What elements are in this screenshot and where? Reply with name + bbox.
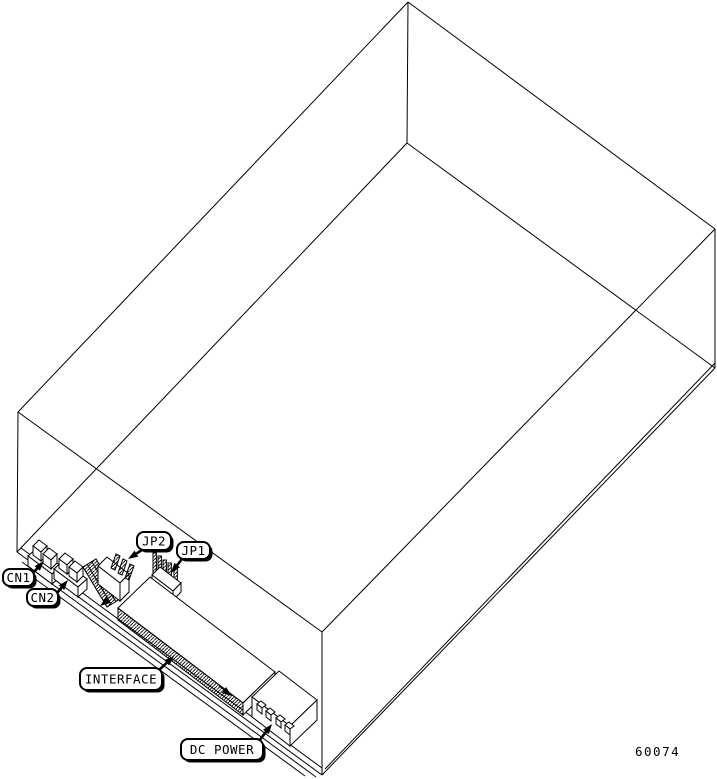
callout-label: DC POWER: [190, 742, 254, 757]
callout-jp2: JP2: [128, 532, 174, 559]
callout-label: INTERFACE: [85, 672, 157, 687]
callout-cn1: CN1: [3, 561, 44, 589]
callout-label: JP2: [142, 534, 166, 549]
callout-label: CN1: [6, 570, 30, 585]
callout-dc-power: DC POWER: [181, 724, 272, 763]
callout-label: JP1: [181, 543, 205, 558]
figure-number: 60074: [635, 744, 680, 759]
interface-connector: [118, 577, 275, 715]
callout-jp1: JP1: [171, 542, 213, 573]
pcb-edge-lines: [21, 363, 715, 777]
figure-canvas: CN1CN2JP2JP1INTERFACEDC POWER 60074: [0, 0, 717, 779]
callout-interface: INTERFACE: [80, 656, 174, 693]
enclosure-wireframe: [17, 2, 715, 775]
connector-location-diagram: CN1CN2JP2JP1INTERFACEDC POWER 60074: [0, 0, 717, 779]
callout-label: CN2: [30, 590, 54, 605]
